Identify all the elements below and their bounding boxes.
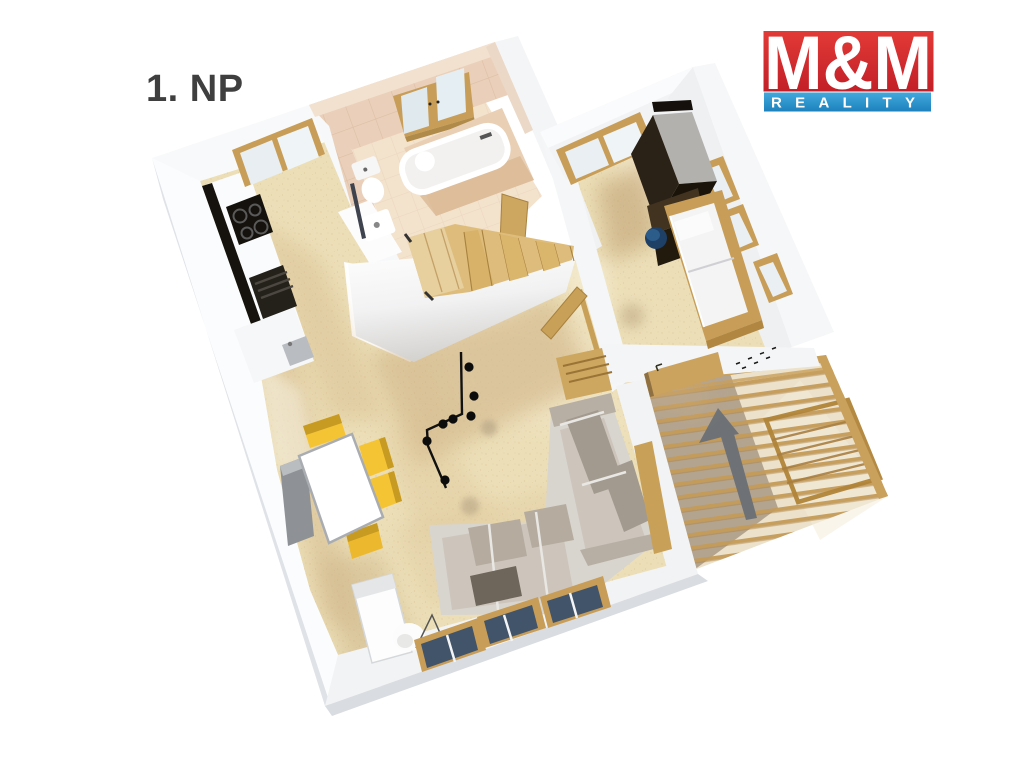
svg-text:M&M: M&M [764, 21, 932, 106]
svg-text:1. NP: 1. NP [146, 68, 244, 110]
